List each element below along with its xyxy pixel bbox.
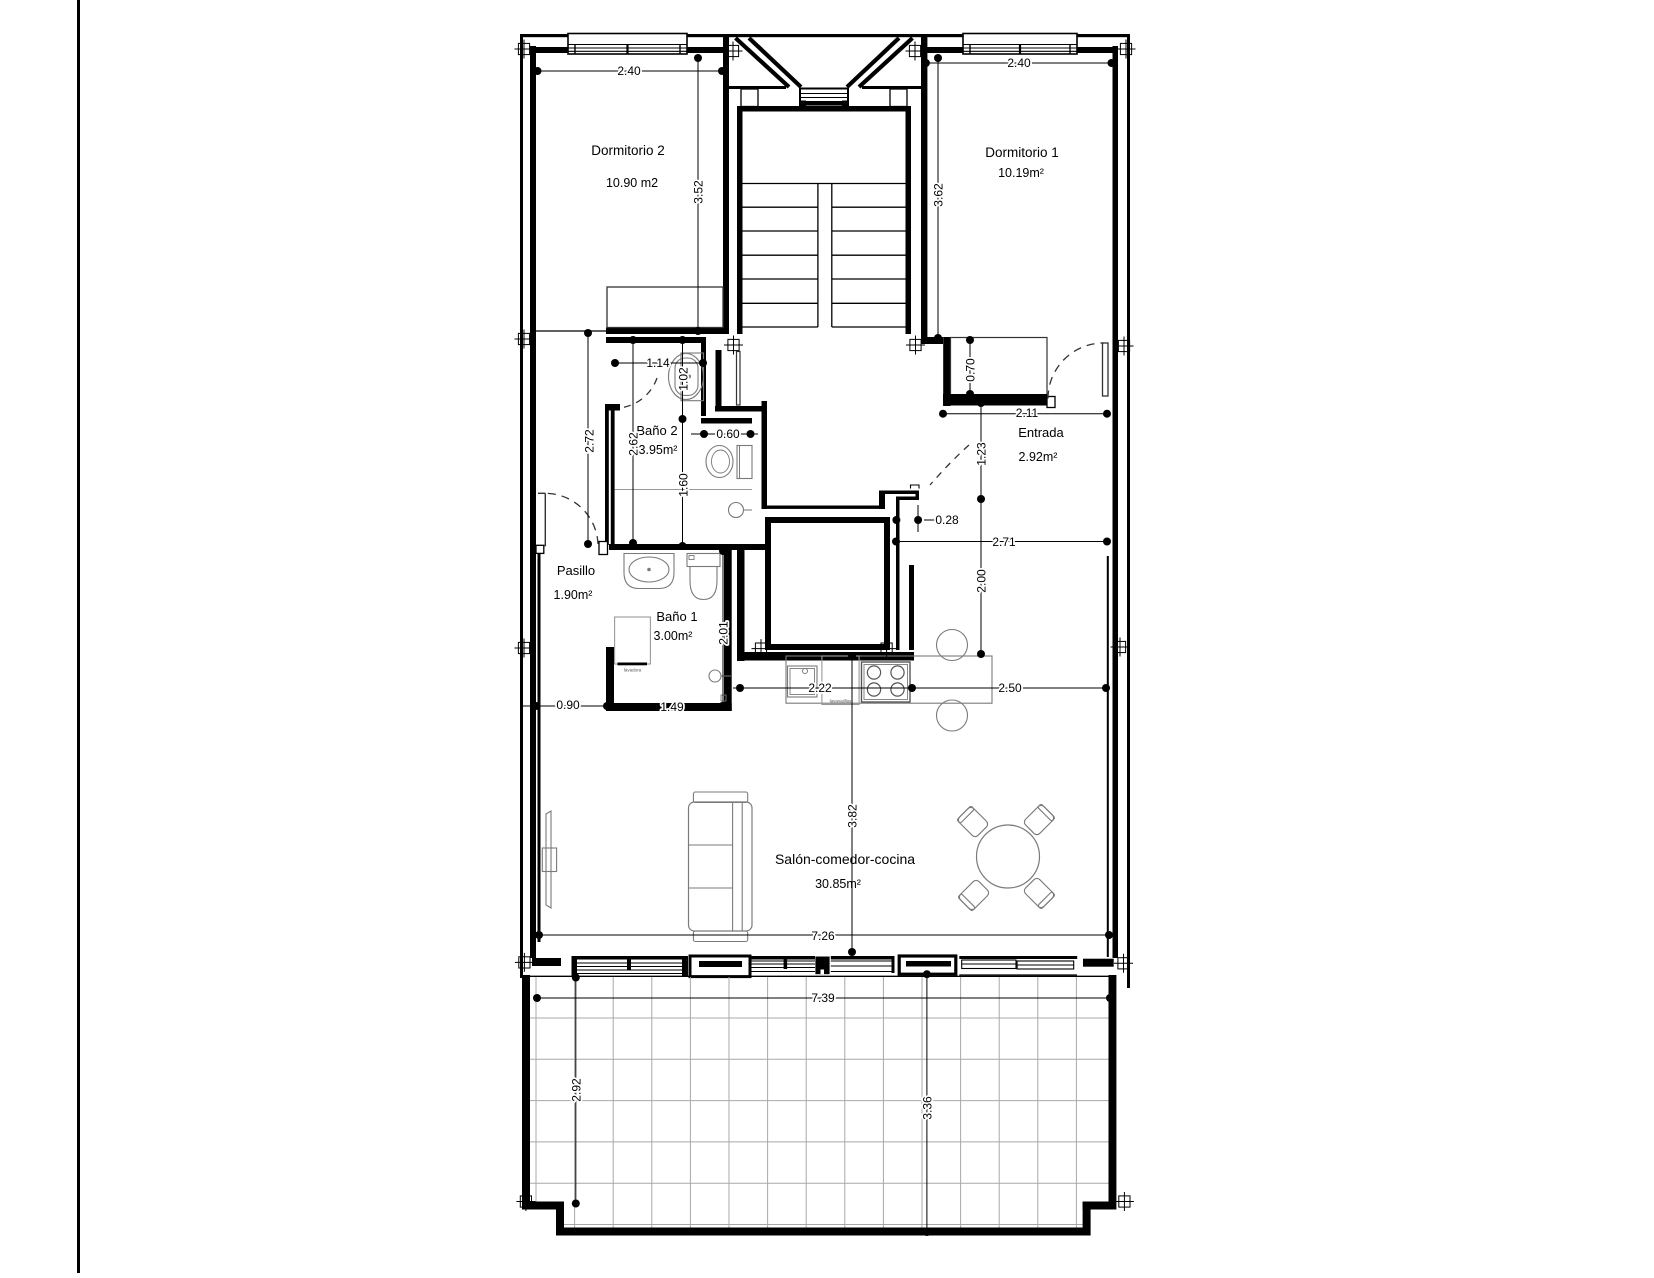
svg-text:Baño 1: Baño 1 bbox=[656, 609, 697, 624]
svg-text:Pasillo: Pasillo bbox=[557, 563, 595, 578]
svg-text:1.14: 1.14 bbox=[646, 356, 670, 370]
svg-text:2.40: 2.40 bbox=[1007, 56, 1031, 70]
svg-text:2.22: 2.22 bbox=[808, 681, 832, 695]
svg-text:10.19m²: 10.19m² bbox=[998, 166, 1044, 180]
svg-text:Salón-comedor-cocina: Salón-comedor-cocina bbox=[775, 851, 915, 867]
svg-text:Baño 2: Baño 2 bbox=[636, 423, 677, 438]
svg-text:3.62: 3.62 bbox=[932, 183, 946, 207]
svg-text:3.95m²: 3.95m² bbox=[639, 443, 678, 457]
svg-text:2.00: 2.00 bbox=[975, 569, 989, 593]
svg-text:2.72: 2.72 bbox=[583, 429, 597, 453]
svg-text:3.82: 3.82 bbox=[846, 804, 860, 828]
svg-text:1.02: 1.02 bbox=[677, 367, 691, 391]
svg-text:Dormitorio 2: Dormitorio 2 bbox=[591, 143, 665, 158]
svg-text:1.60: 1.60 bbox=[677, 473, 691, 497]
svg-text:10.90 m2: 10.90 m2 bbox=[606, 176, 658, 190]
svg-text:0.60: 0.60 bbox=[716, 427, 740, 441]
svg-text:30.85m²: 30.85m² bbox=[815, 877, 861, 891]
svg-text:2.92: 2.92 bbox=[569, 1078, 583, 1102]
svg-text:0.90: 0.90 bbox=[556, 698, 580, 712]
svg-text:1.23: 1.23 bbox=[975, 442, 989, 466]
svg-text:2.50: 2.50 bbox=[998, 681, 1022, 695]
svg-text:2.40: 2.40 bbox=[617, 64, 641, 78]
svg-text:Entrada: Entrada bbox=[1018, 425, 1064, 440]
svg-text:1.90m²: 1.90m² bbox=[554, 588, 593, 602]
svg-text:7.26: 7.26 bbox=[811, 929, 835, 943]
svg-text:0.28: 0.28 bbox=[935, 513, 959, 527]
svg-text:2.92m²: 2.92m² bbox=[1019, 450, 1058, 464]
svg-text:7.39: 7.39 bbox=[811, 991, 835, 1005]
svg-text:2.71: 2.71 bbox=[992, 535, 1016, 549]
svg-text:2.01: 2.01 bbox=[717, 621, 731, 645]
svg-text:0.70: 0.70 bbox=[964, 358, 978, 382]
svg-text:3.52: 3.52 bbox=[692, 180, 706, 204]
svg-text:Dormitorio 1: Dormitorio 1 bbox=[985, 145, 1059, 160]
svg-text:2.11: 2.11 bbox=[1016, 406, 1039, 420]
svg-text:3.36: 3.36 bbox=[920, 1096, 934, 1120]
svg-text:lavadora: lavadora bbox=[624, 668, 642, 673]
svg-text:3.00m²: 3.00m² bbox=[654, 629, 693, 643]
svg-text:2.62: 2.62 bbox=[627, 432, 641, 456]
svg-text:1.49: 1.49 bbox=[660, 700, 684, 714]
svg-text:lavavajillas: lavavajillas bbox=[830, 699, 853, 704]
